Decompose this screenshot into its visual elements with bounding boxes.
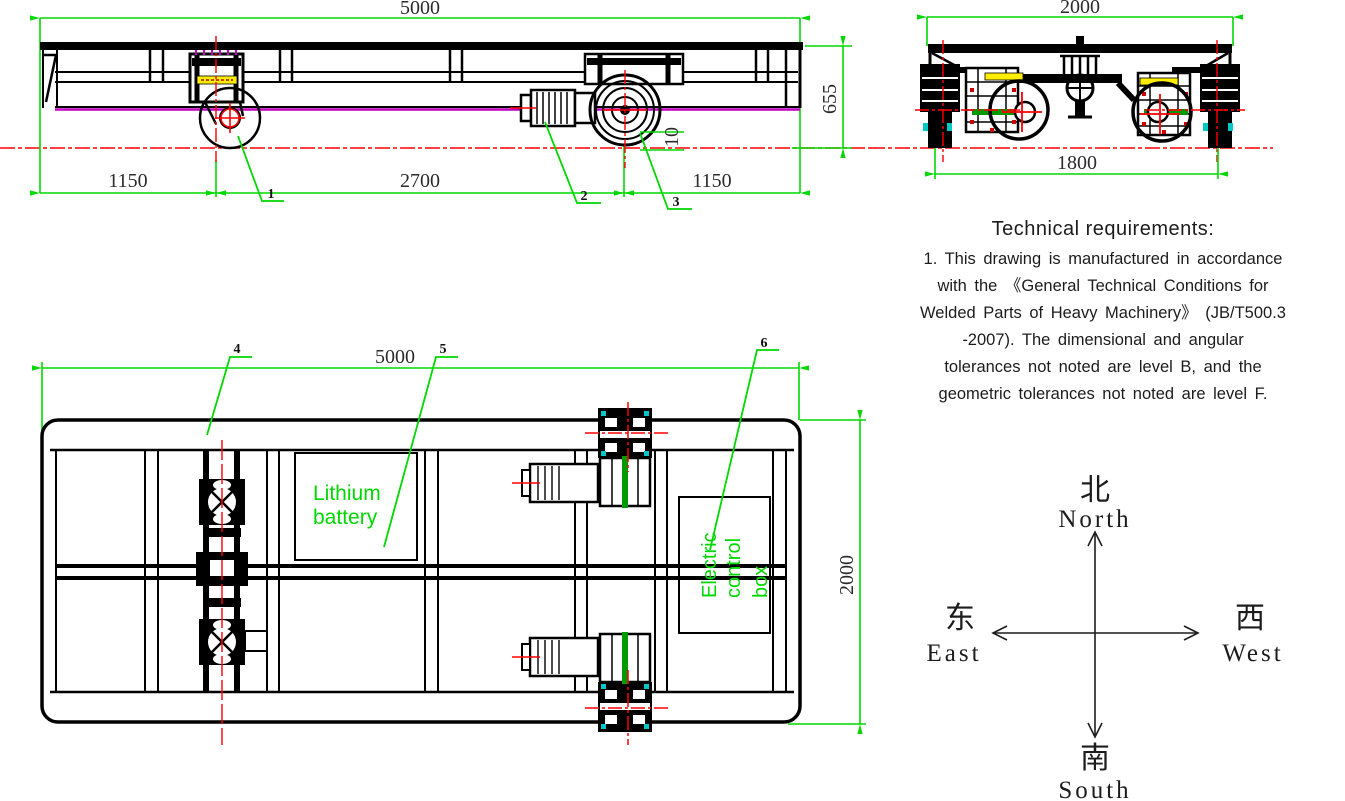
compass-east-cn: 东 bbox=[945, 602, 975, 635]
dim-1800-label: 1800 bbox=[1057, 152, 1097, 174]
drive-unit-bottom-plan bbox=[512, 632, 668, 745]
dim-5000-label: 5000 bbox=[400, 0, 440, 19]
callout-3: 3 bbox=[673, 195, 680, 210]
plan-view: 5000 bbox=[0, 340, 900, 801]
right-wheel-assembly-end bbox=[1133, 64, 1240, 148]
compass-axes bbox=[993, 532, 1198, 737]
shaft-band bbox=[622, 456, 628, 508]
control-box-label-line3: box bbox=[750, 566, 772, 598]
callout-1: 1 bbox=[268, 187, 275, 202]
compass-north-en: North bbox=[1058, 506, 1131, 533]
dimension-5000-side: 5000 bbox=[40, 0, 800, 19]
control-box-label-line1: Electric bbox=[699, 532, 721, 598]
dim-1150-right-label: 1150 bbox=[692, 170, 731, 192]
plan-frame-lines bbox=[50, 450, 794, 692]
compass-west-cn: 西 bbox=[1235, 602, 1265, 635]
dim-5000-plan-label: 5000 bbox=[375, 346, 415, 368]
caster-bottom-plan bbox=[199, 619, 267, 665]
compass-north-cn: 北 bbox=[1080, 474, 1110, 507]
bottom-dimensions: 1150 2700 1150 bbox=[40, 170, 800, 193]
center-bolster bbox=[1060, 56, 1100, 117]
cart-body-outline bbox=[42, 420, 800, 722]
side-view: 5000 bbox=[0, 0, 870, 230]
compass-south-en: South bbox=[1058, 777, 1131, 801]
shaft-band bbox=[622, 632, 628, 684]
dim-2700-label: 2700 bbox=[400, 170, 440, 192]
dim-10-label: 10 bbox=[661, 127, 683, 147]
battery-label-line2: battery bbox=[313, 506, 378, 529]
engineering-drawing-sheet: 5000 bbox=[0, 0, 1345, 801]
callout-4: 4 bbox=[234, 342, 241, 357]
technical-requirements: Technical requirements: 1. This drawing … bbox=[860, 218, 1345, 408]
dim-655-label: 655 bbox=[819, 84, 841, 114]
tech-line-2: with the 《General Technical Conditions f… bbox=[860, 273, 1345, 300]
dim-1150-left-label: 1150 bbox=[108, 170, 147, 192]
cart-frame-side bbox=[40, 42, 803, 108]
compass-south-cn: 南 bbox=[1080, 742, 1110, 775]
drive-unit-top-plan bbox=[512, 402, 668, 508]
caster-wheel-assembly-side bbox=[190, 36, 260, 162]
motor-nameplate bbox=[985, 73, 1023, 80]
end-view: 2000 bbox=[870, 0, 1345, 230]
callout-2: 2 bbox=[581, 189, 588, 204]
callout-6: 6 bbox=[761, 336, 768, 351]
tech-line-5: tolerances not noted are level B, and th… bbox=[860, 354, 1345, 381]
caster-column-plan bbox=[196, 440, 267, 745]
technical-requirements-title: Technical requirements: bbox=[860, 218, 1345, 241]
tech-line-6: geometric tolerances not noted are level… bbox=[860, 381, 1345, 408]
lithium-battery-box: Lithium battery bbox=[295, 453, 417, 560]
dim-2000-end-label: 2000 bbox=[1060, 0, 1100, 18]
dimension-5000-plan bbox=[42, 362, 799, 437]
tech-line-3: Welded Parts of Heavy Machinery》 (JB/T50… bbox=[860, 300, 1345, 327]
dim-2000-plan-label: 2000 bbox=[836, 555, 858, 595]
compass-west-en: West bbox=[1222, 640, 1283, 667]
battery-label-line1: Lithium bbox=[313, 482, 381, 505]
control-box-label-line2: control bbox=[723, 538, 745, 598]
tech-line-4: -2007). The dimensional and angular bbox=[860, 327, 1345, 354]
compass-rose: 北 North 东 East 西 West 南 South bbox=[900, 455, 1345, 801]
compass-east-en: East bbox=[926, 640, 981, 667]
tech-line-1: 1. This drawing is manufactured in accor… bbox=[860, 246, 1345, 273]
callout-5: 5 bbox=[440, 342, 447, 357]
